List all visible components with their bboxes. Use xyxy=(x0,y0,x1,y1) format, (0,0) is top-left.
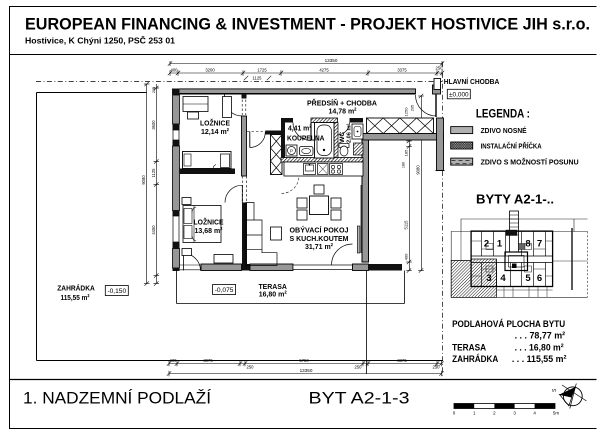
svg-text:5m: 5m xyxy=(553,411,560,416)
svg-text:EUROPEAN FINANCING & INVESTMEN: EUROPEAN FINANCING & INVESTMENT - PROJEK… xyxy=(25,16,590,34)
svg-text:KOUPELNA: KOUPELNA xyxy=(287,134,325,143)
svg-text:8: 8 xyxy=(525,239,530,250)
svg-text:115,55 m²: 115,55 m² xyxy=(61,293,90,302)
svg-text:16,80 m²: 16,80 m² xyxy=(259,290,287,299)
svg-text:250: 250 xyxy=(436,66,444,71)
svg-text:LEGENDA :: LEGENDA : xyxy=(476,106,530,120)
svg-text:5750: 5750 xyxy=(299,358,309,363)
svg-text:205: 205 xyxy=(152,87,156,93)
svg-text:13,68 m²: 13,68 m² xyxy=(195,226,223,235)
svg-text:1725: 1725 xyxy=(257,68,267,73)
svg-text:TERASA: TERASA xyxy=(452,343,486,353)
svg-text:7: 7 xyxy=(537,239,542,250)
svg-text:13350: 13350 xyxy=(325,58,338,63)
svg-text:9080: 9080 xyxy=(141,175,146,185)
svg-text:±0,000: ±0,000 xyxy=(449,92,469,99)
svg-text:1250: 1250 xyxy=(404,107,409,117)
svg-text:PODLAHOVÁ PLOCHA BYTU: PODLAHOVÁ PLOCHA BYTU xyxy=(452,318,565,329)
svg-text:400: 400 xyxy=(170,358,178,363)
svg-text:. . . 16,80 m²: . . . 16,80 m² xyxy=(515,343,564,353)
svg-text:3200: 3200 xyxy=(205,68,215,73)
svg-text:P: P xyxy=(290,148,293,153)
svg-text:BYT A2-1-3: BYT A2-1-3 xyxy=(309,388,410,407)
svg-text:3375: 3375 xyxy=(397,68,407,73)
svg-text:. . . 115,55 m²: . . . 115,55 m² xyxy=(512,354,567,364)
svg-text:9080: 9080 xyxy=(416,165,421,175)
svg-text:250: 250 xyxy=(247,365,255,370)
svg-text:WC: WC xyxy=(339,132,346,143)
svg-text:3600: 3600 xyxy=(151,120,156,130)
svg-text:-0,150: -0,150 xyxy=(107,288,126,295)
svg-text:INSTALAČNÍ PŘÍČKA: INSTALAČNÍ PŘÍČKA xyxy=(481,141,542,150)
svg-text:14,78 m²: 14,78 m² xyxy=(329,107,357,116)
svg-text:4275: 4275 xyxy=(319,68,329,73)
svg-text:12,14 m²: 12,14 m² xyxy=(201,127,229,136)
svg-text:4,41 m²: 4,41 m² xyxy=(288,124,312,133)
svg-text:Hostivice, K Chýni 1250, PSČ 2: Hostivice, K Chýni 1250, PSČ 253 01 xyxy=(25,36,176,45)
svg-text:3: 3 xyxy=(486,273,491,284)
svg-text:250: 250 xyxy=(433,365,441,370)
svg-text:ZAHRÁDKA: ZAHRÁDKA xyxy=(57,284,95,293)
svg-text:-0,075: -0,075 xyxy=(215,287,234,294)
svg-text:3075: 3075 xyxy=(203,358,213,363)
svg-text:205: 205 xyxy=(411,105,415,111)
svg-text:250: 250 xyxy=(355,365,363,370)
svg-text:1125: 1125 xyxy=(151,168,156,178)
svg-text:1: 1 xyxy=(497,239,503,250)
svg-text:5: 5 xyxy=(525,273,531,284)
svg-text:5115: 5115 xyxy=(404,220,409,230)
svg-text:HLAVNÍ CHODBA: HLAVNÍ CHODBA xyxy=(444,77,500,86)
svg-text:4450: 4450 xyxy=(151,225,156,235)
svg-text:13350: 13350 xyxy=(300,368,313,373)
svg-text:BYTY A2-1-..: BYTY A2-1-.. xyxy=(476,192,554,206)
svg-text:185: 185 xyxy=(404,149,409,156)
svg-text:400: 400 xyxy=(171,68,179,73)
svg-text:1125: 1125 xyxy=(252,76,262,81)
svg-text:2: 2 xyxy=(484,239,489,250)
svg-text:2,06 m²: 2,06 m² xyxy=(346,124,353,143)
svg-text:6: 6 xyxy=(537,273,542,284)
svg-text:ZDIVO NOSNÉ: ZDIVO NOSNÉ xyxy=(481,126,527,135)
svg-text:ZAHRÁDKA: ZAHRÁDKA xyxy=(452,353,499,364)
svg-text:1. NADZEMNÍ PODLAŽÍ: 1. NADZEMNÍ PODLAŽÍ xyxy=(23,388,211,407)
svg-text:ZDIVO S MOŽNOSTÍ POSUNU: ZDIVO S MOŽNOSTÍ POSUNU xyxy=(481,158,579,167)
svg-text:4: 4 xyxy=(500,273,506,284)
svg-text:3375: 3375 xyxy=(397,358,407,363)
svg-text:180: 180 xyxy=(402,162,406,168)
svg-text:400: 400 xyxy=(404,253,409,260)
svg-text:. . . 78,77 m²: . . . 78,77 m² xyxy=(515,330,566,340)
svg-text:31,71 m²: 31,71 m² xyxy=(305,242,333,251)
